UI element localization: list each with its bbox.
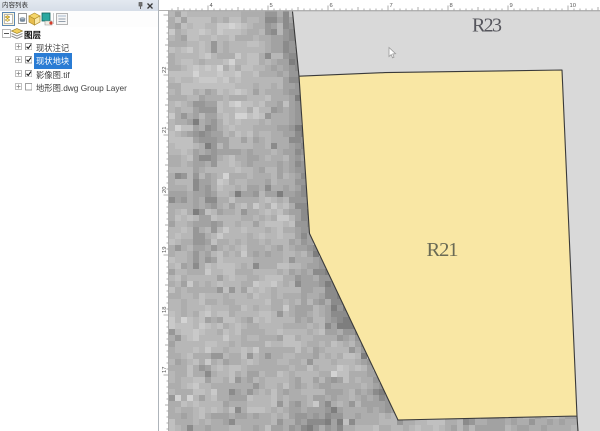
svg-text:7: 7	[390, 3, 393, 9]
svg-text:6: 6	[330, 3, 333, 9]
svg-text:8: 8	[450, 3, 453, 9]
svg-text:9: 9	[510, 3, 513, 9]
svg-text:20: 20	[162, 187, 168, 193]
svg-text:18: 18	[162, 307, 168, 313]
svg-text:22: 22	[162, 67, 168, 73]
svg-text:21: 21	[162, 127, 168, 133]
svg-text:5: 5	[270, 3, 273, 9]
svg-text:R21: R21	[427, 239, 459, 261]
svg-text:17: 17	[162, 367, 168, 373]
svg-text:10: 10	[570, 3, 576, 9]
svg-text:R23: R23	[472, 15, 502, 37]
svg-text:19: 19	[162, 247, 168, 253]
